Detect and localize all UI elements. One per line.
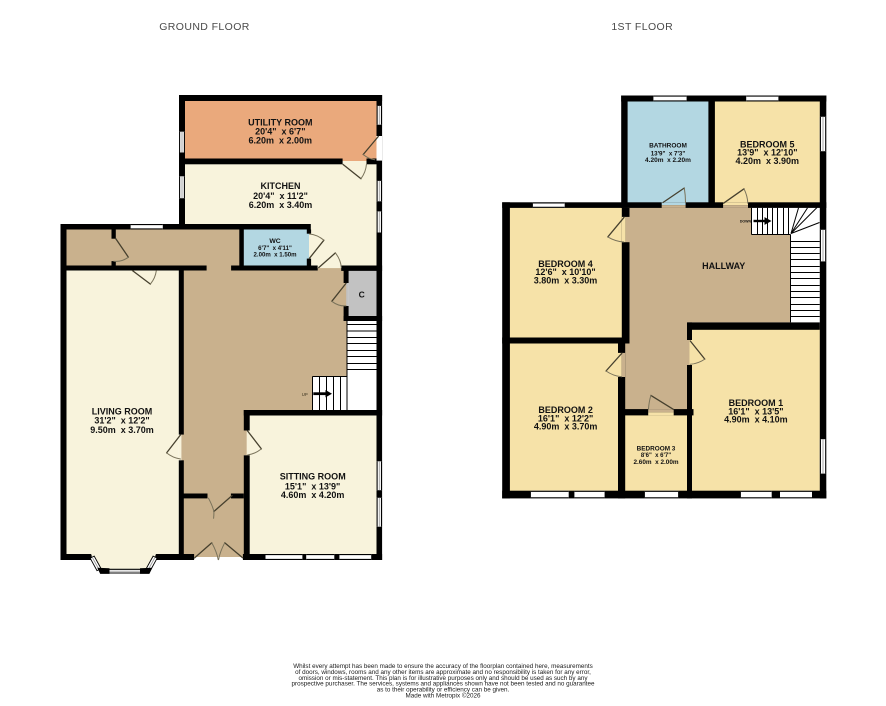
- svg-text:6.20m x 2.00m: 6.20m x 2.00m: [249, 136, 313, 146]
- svg-text:BEDROOM 3: BEDROOM 3: [637, 445, 676, 452]
- svg-text:GROUND FLOOR: GROUND FLOOR: [159, 21, 250, 33]
- svg-text:UP: UP: [302, 392, 308, 397]
- svg-text:4.20m x 2.20m: 4.20m x 2.20m: [645, 157, 691, 164]
- svg-text:1ST FLOOR: 1ST FLOOR: [611, 21, 673, 33]
- svg-text:2.60m x 2.00m: 2.60m x 2.00m: [633, 459, 678, 466]
- svg-text:4.60m x 4.20m: 4.60m x 4.20m: [281, 490, 345, 500]
- svg-text:4.90m x 4.10m: 4.90m x 4.10m: [724, 415, 788, 425]
- svg-text:C: C: [359, 290, 365, 300]
- svg-text:9.50m x 3.70m: 9.50m x 3.70m: [90, 425, 154, 435]
- svg-text:BATHROOM: BATHROOM: [649, 143, 687, 150]
- svg-text:4.90m x 3.70m: 4.90m x 3.70m: [534, 422, 598, 432]
- svg-text:SITTING ROOM: SITTING ROOM: [280, 472, 346, 482]
- svg-text:4.20m x 3.90m: 4.20m x 3.90m: [736, 156, 800, 166]
- svg-text:Made with Metropix ©2026: Made with Metropix ©2026: [406, 692, 481, 700]
- svg-text:DOWN: DOWN: [740, 219, 752, 223]
- svg-text:2.00m x 1.50m: 2.00m x 1.50m: [253, 251, 297, 258]
- svg-text:6.20m x 3.40m: 6.20m x 3.40m: [249, 200, 313, 210]
- svg-text:3.80m x 3.30m: 3.80m x 3.30m: [534, 276, 598, 286]
- svg-text:HALLWAY: HALLWAY: [702, 261, 745, 271]
- svg-text:KITCHEN: KITCHEN: [261, 181, 301, 191]
